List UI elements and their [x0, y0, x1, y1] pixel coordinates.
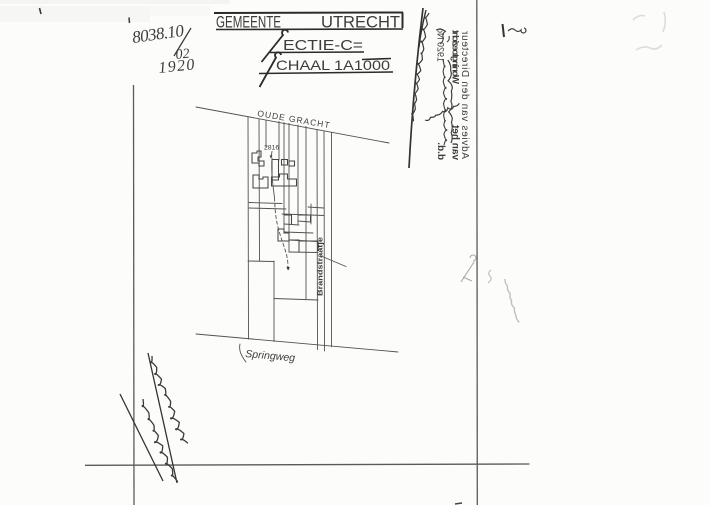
svg-text:Springweg: Springweg	[245, 348, 296, 364]
svg-text:Brandstraatje: Brandstraatje	[316, 237, 325, 296]
svg-text:8038.10: 8038.10	[131, 21, 186, 47]
svg-text:OUDE GRACHT: OUDE GRACHT	[257, 108, 332, 130]
svg-text:1920: 1920	[158, 56, 196, 77]
svg-text:2816: 2816	[264, 145, 279, 152]
